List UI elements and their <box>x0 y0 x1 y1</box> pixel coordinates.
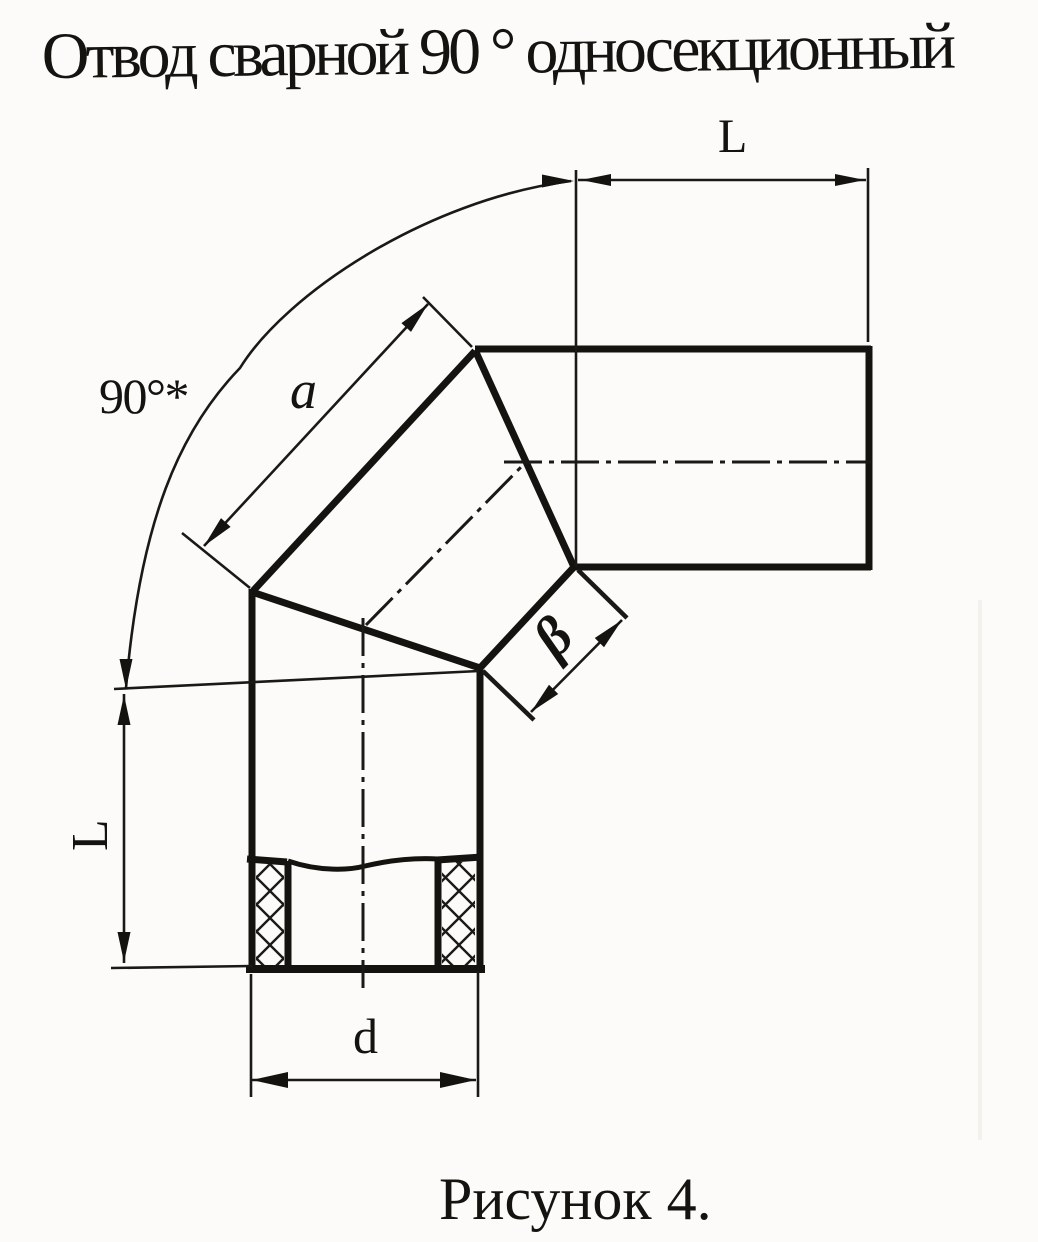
svg-text:d: d <box>353 1008 378 1064</box>
svg-text:L: L <box>718 110 747 163</box>
svg-text:Рисунок 4.: Рисунок 4. <box>439 1166 712 1232</box>
svg-text:Отвод сварной 90 ° односекцион: Отвод сварной 90 ° односекционный <box>41 10 955 93</box>
svg-text:L: L <box>62 819 119 851</box>
svg-text:90°*: 90°* <box>99 368 188 424</box>
svg-text:a: a <box>290 360 317 420</box>
